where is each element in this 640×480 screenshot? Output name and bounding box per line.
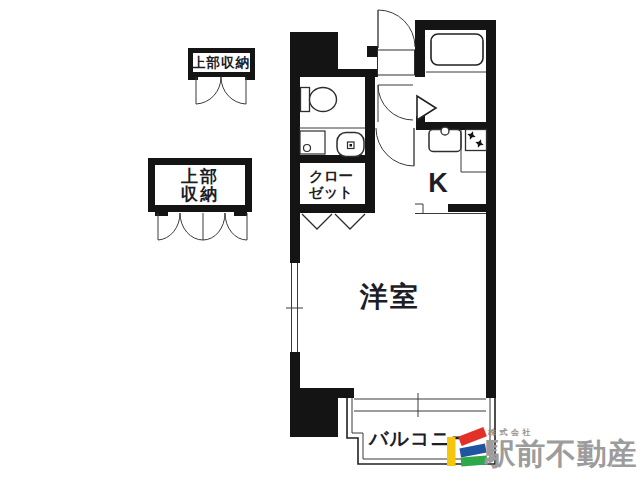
floor-plan-drawing: 上部収納 上部 収納 クロー ゼット K 洋室 バルコニー 株式会社 駅前不動産 [0,0,640,480]
bathroom [417,34,486,120]
company-name-label: 駅前不動産 [484,437,638,470]
toilet-room [299,88,365,157]
walls [155,20,496,437]
wall-segment [365,77,375,213]
double-door-arcs [196,77,246,104]
door-arc [376,128,414,166]
logo-bar-green [461,456,488,467]
wall-segment [338,69,378,77]
wall-segment [486,20,496,398]
kitchen [415,127,487,214]
floor-plan-canvas: 上部収納 上部 収納 クロー ゼット K 洋室 バルコニー 株式会社 駅前不動産 [0,0,640,480]
upper-storage-small-label: 上部収納 [191,55,250,70]
folding-door-icon [302,214,332,229]
genkan-step [378,50,415,75]
wall-segment [448,204,486,212]
entrance [378,10,416,75]
logo-bar-yellow [447,437,456,466]
washbasin-drain-dot [350,144,353,147]
double-door-arcs [158,213,247,240]
drain-icon [304,145,311,152]
hallway-doors [376,85,414,166]
upper-storage-large-label-line1: 上部 [180,167,219,186]
wall-segment [290,204,375,213]
wall-segment [298,388,354,398]
bath-door-marker-icon [417,96,436,120]
folding-door-icon [335,214,365,229]
kitchen-label: K [428,168,448,198]
kitchen-step-line [415,204,423,213]
closet-label-line1: クロー [309,168,353,184]
washing-machine-pan-icon [300,131,325,154]
upper-storage-large-label-line2: 収納 [181,185,219,204]
wall-segment [415,20,425,77]
company-prefix-label: 株式会社 [487,428,534,437]
door-arc [378,85,413,120]
closet [302,214,365,229]
entrance-door-arc [378,10,415,47]
faucet-icon [441,127,449,135]
bathtub-icon [431,34,483,65]
toilet-tank-icon [301,88,310,112]
toilet-bowl-icon [310,88,337,112]
wall-segment [367,46,378,57]
wall-segment [290,69,300,263]
company-logo: 株式会社 駅前不動産 [447,427,638,470]
closet-label-line2: ゼット [309,184,354,200]
stove-icon [466,130,487,151]
balcony-sliding-window [354,399,486,411]
western-room-label: 洋室 [359,281,420,312]
wall-segment [415,20,496,30]
